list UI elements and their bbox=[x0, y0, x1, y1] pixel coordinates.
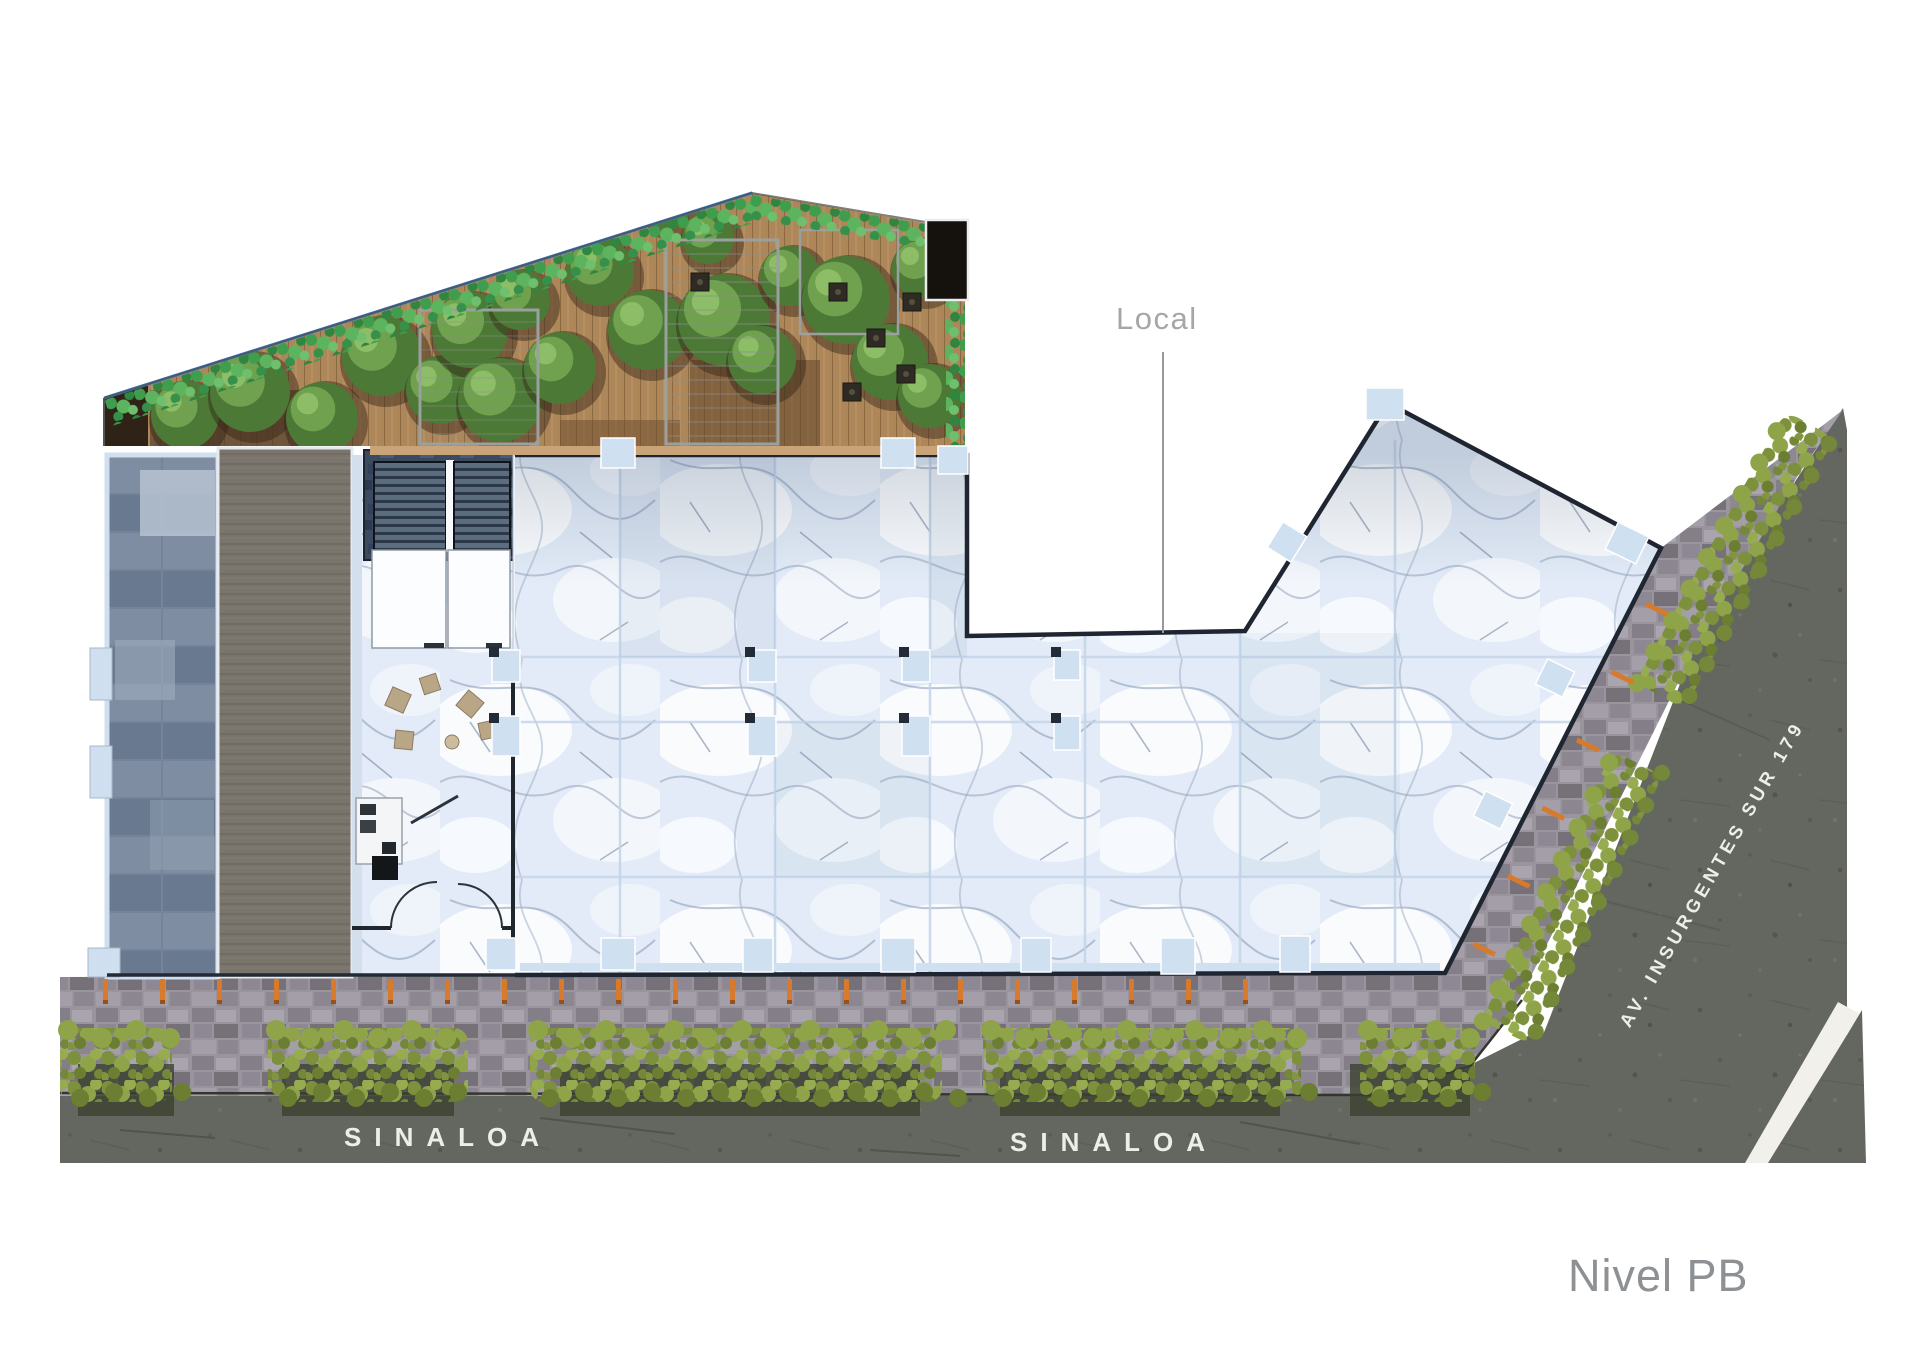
hedge-tuft bbox=[562, 1028, 582, 1048]
column-marker bbox=[745, 713, 776, 756]
hedge-tuft bbox=[139, 1089, 157, 1107]
hedge-tuft bbox=[1083, 1028, 1103, 1048]
column-marker bbox=[1021, 938, 1051, 972]
hedge-tuft bbox=[596, 1020, 616, 1040]
column-marker bbox=[489, 713, 520, 756]
hedge-tuft bbox=[1473, 1083, 1491, 1101]
side-patio-paved-strip bbox=[88, 455, 218, 977]
column-wall-stub bbox=[745, 647, 755, 657]
orange-tick-cap bbox=[274, 1000, 279, 1004]
hedge-tuft bbox=[334, 1020, 354, 1040]
hedge-tuft bbox=[415, 1089, 433, 1107]
column-face bbox=[938, 446, 968, 474]
service-room bbox=[372, 550, 446, 648]
hedge-tuft bbox=[766, 1028, 786, 1048]
column-face bbox=[1366, 388, 1404, 420]
column-marker bbox=[881, 438, 915, 468]
terrace-stair-access bbox=[926, 220, 968, 300]
table-center bbox=[903, 371, 909, 377]
column-marker bbox=[486, 938, 516, 970]
column-marker bbox=[601, 438, 635, 468]
street-hedges-bottom bbox=[58, 1020, 1491, 1107]
hedge-tuft bbox=[402, 1020, 422, 1040]
orange-tick-cap bbox=[331, 1000, 336, 1004]
orange-tick-cap bbox=[1243, 1000, 1248, 1004]
column-wall-stub bbox=[745, 713, 755, 723]
hedge-tuft bbox=[698, 1028, 718, 1048]
orange-tick-cap bbox=[160, 1000, 165, 1004]
access-ramp bbox=[218, 448, 352, 977]
hedge-tuft bbox=[981, 1020, 1001, 1040]
hedge-tuft bbox=[347, 1089, 365, 1107]
orange-tick-cap bbox=[388, 1000, 393, 1004]
hedge-tuft bbox=[779, 1083, 797, 1101]
terrace-side-hedge bbox=[946, 298, 965, 445]
column-marker bbox=[899, 713, 930, 756]
hedge-tuft bbox=[92, 1028, 112, 1048]
orange-tick-cap bbox=[559, 1000, 564, 1004]
hedge-segment bbox=[1358, 1020, 1491, 1107]
hedge-tuft bbox=[449, 1083, 467, 1101]
table-center bbox=[873, 335, 879, 341]
hedge-tuft bbox=[847, 1083, 865, 1101]
hedge-tuft bbox=[58, 1020, 78, 1040]
table-center bbox=[909, 299, 915, 305]
orange-tick-cap bbox=[844, 1000, 849, 1004]
hedge-tuft bbox=[881, 1089, 899, 1107]
hedge-tuft bbox=[300, 1028, 320, 1048]
hedge-tuft bbox=[71, 1089, 89, 1107]
tree-canopy-highlight bbox=[901, 247, 919, 265]
column-face bbox=[881, 938, 915, 972]
terrace-table bbox=[843, 383, 861, 401]
elevator-cab bbox=[454, 462, 510, 550]
hedge-tuft bbox=[1028, 1083, 1046, 1101]
orange-tick-cap bbox=[616, 1000, 621, 1004]
column-face bbox=[743, 938, 773, 972]
hedge-tuft bbox=[1426, 1020, 1446, 1040]
hedge-tuft bbox=[266, 1020, 286, 1040]
hedge-tuft bbox=[381, 1083, 399, 1101]
hedge-tuft bbox=[1266, 1089, 1284, 1107]
hedge-tuft bbox=[1232, 1083, 1250, 1101]
hedge-tuft bbox=[745, 1089, 763, 1107]
hedge-tuft bbox=[1460, 1028, 1480, 1048]
hedge-tuft bbox=[609, 1089, 627, 1107]
hedge-tuft bbox=[173, 1083, 191, 1101]
column-wall-stub bbox=[1051, 647, 1061, 657]
orange-tick-cap bbox=[502, 1000, 507, 1004]
orange-tick-cap bbox=[1015, 1000, 1020, 1004]
floor-plan-drawing bbox=[0, 0, 1920, 1350]
hedge-tuft bbox=[1096, 1083, 1114, 1101]
street-label-sinaloa-west: SINALOA bbox=[344, 1122, 552, 1153]
column-marker bbox=[881, 938, 915, 972]
column-marker bbox=[745, 647, 776, 682]
tree-canopy-highlight bbox=[738, 336, 758, 356]
column-marker bbox=[1051, 647, 1080, 680]
hedge-tuft bbox=[630, 1028, 650, 1048]
orange-tick-cap bbox=[958, 1000, 963, 1004]
hedge-tuft bbox=[541, 1089, 559, 1107]
hedge-tuft bbox=[1219, 1028, 1239, 1048]
hedge-tuft bbox=[279, 1089, 297, 1107]
hedge-tuft bbox=[813, 1089, 831, 1107]
hedge-tuft bbox=[126, 1020, 146, 1040]
orange-tick-cap bbox=[1129, 1000, 1134, 1004]
stove bbox=[372, 856, 398, 880]
orange-tick-cap bbox=[787, 1000, 792, 1004]
orange-tick-cap bbox=[217, 1000, 222, 1004]
orange-tick-cap bbox=[673, 1000, 678, 1004]
tree-canopy-highlight bbox=[297, 393, 319, 415]
hedge-tuft bbox=[902, 1028, 922, 1048]
hedge-tuft bbox=[1405, 1083, 1423, 1101]
hedge-tuft bbox=[936, 1020, 956, 1040]
hedge-tuft bbox=[1392, 1028, 1412, 1048]
hedge-tuft bbox=[105, 1083, 123, 1101]
tree-canopy-highlight bbox=[692, 288, 720, 316]
hedge-tuft bbox=[711, 1083, 729, 1101]
hedge-tuft bbox=[1198, 1089, 1216, 1107]
hedge-tuft bbox=[732, 1020, 752, 1040]
column-marker bbox=[1280, 936, 1310, 972]
hedge-tuft bbox=[1287, 1028, 1307, 1048]
column-face bbox=[601, 938, 635, 970]
hedge-tuft bbox=[664, 1020, 684, 1040]
column-marker bbox=[743, 938, 773, 972]
tree-canopy-light bbox=[649, 189, 676, 216]
hedge-segment bbox=[981, 1020, 1318, 1107]
hedge-tuft bbox=[1371, 1089, 1389, 1107]
hedge-tuft bbox=[800, 1020, 820, 1040]
level-title: Nivel PB bbox=[1568, 1250, 1749, 1302]
column-marker bbox=[1366, 388, 1404, 420]
terrace-table bbox=[691, 273, 709, 291]
hedge-tuft bbox=[994, 1089, 1012, 1107]
column-face bbox=[601, 438, 635, 468]
hedge-tuft bbox=[1185, 1020, 1205, 1040]
table-center bbox=[835, 289, 841, 295]
table-center bbox=[697, 279, 703, 285]
column-wall-stub bbox=[899, 647, 909, 657]
terrace-table bbox=[903, 293, 921, 311]
local-label: Local bbox=[1116, 301, 1198, 337]
tree bbox=[726, 325, 806, 405]
hedge-tuft bbox=[1049, 1020, 1069, 1040]
tree-canopy-highlight bbox=[653, 193, 666, 206]
column-marker bbox=[938, 446, 968, 474]
orange-tick-cap bbox=[445, 1000, 450, 1004]
terrace-table bbox=[897, 365, 915, 383]
orange-tick-cap bbox=[103, 1000, 108, 1004]
hedge-tuft bbox=[915, 1083, 933, 1101]
hedge-tuft bbox=[1164, 1083, 1182, 1101]
elevator-cab bbox=[374, 462, 446, 550]
hedge-segment bbox=[266, 1020, 468, 1107]
tree-canopy-highlight bbox=[620, 302, 644, 326]
column-marker bbox=[601, 938, 635, 970]
hedge-tuft bbox=[1117, 1020, 1137, 1040]
hedge-tuft bbox=[1253, 1020, 1273, 1040]
table-center bbox=[849, 389, 855, 395]
hedge-tuft bbox=[368, 1028, 388, 1048]
hedge-tuft bbox=[949, 1089, 967, 1107]
hedge-tuft bbox=[868, 1020, 888, 1040]
hedge-tuft bbox=[1300, 1083, 1318, 1101]
hedge-tuft bbox=[1130, 1089, 1148, 1107]
hedge-tuft bbox=[1358, 1020, 1378, 1040]
column-wall-stub bbox=[1051, 713, 1061, 723]
column-marker bbox=[1051, 713, 1080, 750]
terrace-table bbox=[867, 329, 885, 347]
street-label-sinaloa-east: SINALOA bbox=[1010, 1127, 1218, 1158]
column-marker bbox=[899, 647, 930, 682]
hedge-segment bbox=[528, 1020, 967, 1107]
tree bbox=[522, 331, 606, 415]
column-face bbox=[881, 438, 915, 468]
hedge-tuft bbox=[1015, 1028, 1035, 1048]
hedge-tuft bbox=[436, 1028, 456, 1048]
hedge-tuft bbox=[1439, 1089, 1457, 1107]
orange-tick-cap bbox=[730, 1000, 735, 1004]
service-room bbox=[448, 550, 510, 648]
orange-tick-cap bbox=[1186, 1000, 1191, 1004]
floor-plan-canvas: Local SINALOA SINALOA AV. INSURGENTES SU… bbox=[0, 0, 1920, 1350]
column-face bbox=[1280, 936, 1310, 972]
lobby bbox=[352, 450, 537, 975]
column-wall-stub bbox=[899, 713, 909, 723]
column-wall-stub bbox=[489, 647, 499, 657]
terrace-table bbox=[829, 283, 847, 301]
hedge-tuft bbox=[677, 1089, 695, 1107]
hedge-tuft bbox=[528, 1020, 548, 1040]
coffee-table bbox=[445, 735, 459, 749]
column-face bbox=[1161, 938, 1195, 974]
hedge-tuft bbox=[313, 1083, 331, 1101]
column-wall-stub bbox=[489, 713, 499, 723]
column-face bbox=[486, 938, 516, 970]
orange-tick-cap bbox=[901, 1000, 906, 1004]
armchair bbox=[394, 730, 414, 750]
hedge-tuft bbox=[575, 1083, 593, 1101]
hedge-tuft bbox=[643, 1083, 661, 1101]
column-marker bbox=[1161, 938, 1195, 974]
hedge-tuft bbox=[1062, 1089, 1080, 1107]
column-face bbox=[1021, 938, 1051, 972]
hedge-tuft bbox=[1151, 1028, 1171, 1048]
orange-tick-cap bbox=[1072, 1000, 1077, 1004]
hedge-tuft bbox=[160, 1028, 180, 1048]
column-marker bbox=[489, 647, 520, 682]
hedge-tuft bbox=[834, 1028, 854, 1048]
